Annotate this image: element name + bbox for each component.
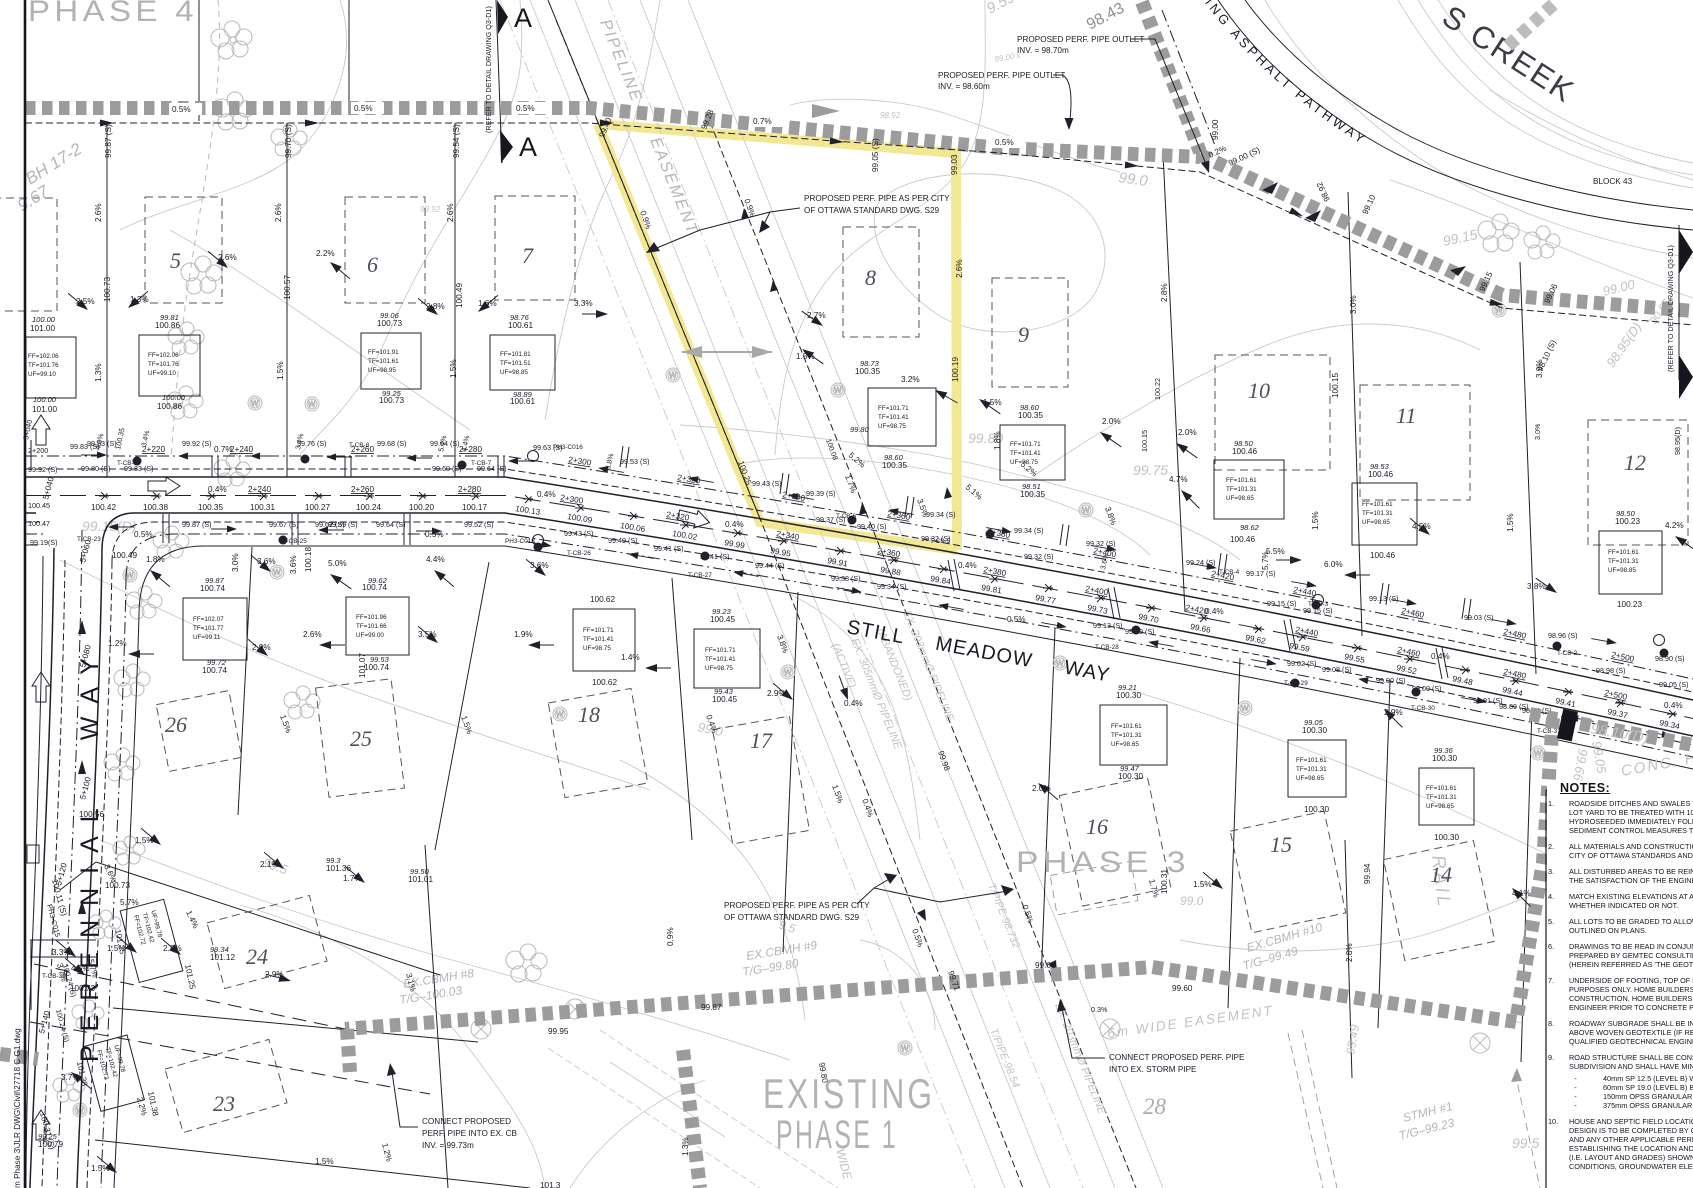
svg-text:2.1%: 2.1% (260, 860, 279, 869)
svg-text:5.7%: 5.7% (1261, 551, 1270, 570)
svg-text:1.5%: 1.5% (459, 715, 474, 736)
svg-text:1.5%: 1.5% (91, 1164, 110, 1173)
svg-text:98.92: 98.92 (880, 111, 901, 120)
svg-text:99.23: 99.23 (712, 607, 732, 616)
svg-text:25: 25 (350, 726, 372, 751)
svg-text:0.4%: 0.4% (725, 520, 744, 529)
svg-text:0.4%: 0.4% (958, 561, 977, 570)
svg-text:2.6%: 2.6% (446, 203, 455, 222)
svg-text:8: 8 (865, 265, 876, 290)
svg-text:101.00: 101.00 (30, 324, 55, 333)
svg-text:W: W (126, 571, 134, 580)
svg-text:99.34 (S): 99.34 (S) (1014, 526, 1044, 535)
svg-text:99.75: 99.75 (1133, 462, 1168, 478)
svg-text:S CREEK: S CREEK (1436, 0, 1581, 110)
svg-text:W: W (1534, 749, 1542, 758)
svg-text:98.96 (S): 98.96 (S) (1548, 631, 1578, 640)
svg-text:1.5%: 1.5% (983, 398, 1002, 407)
svg-text:PH3-C016: PH3-C016 (553, 444, 583, 451)
svg-text:99.60 (S): 99.60 (S) (432, 464, 462, 473)
svg-text:100.62: 100.62 (592, 678, 617, 687)
svg-text:BH 17-2: BH 17-2 (22, 139, 85, 188)
svg-text:5.7%: 5.7% (120, 898, 139, 907)
svg-text:5.2%: 5.2% (847, 451, 867, 470)
svg-text:99.5: 99.5 (1512, 1135, 1539, 1151)
svg-text:100.46: 100.46 (1232, 447, 1257, 456)
svg-text:98.89: 98.89 (513, 390, 533, 399)
svg-text:2.7%: 2.7% (807, 311, 826, 320)
svg-text:2.0%: 2.0% (1102, 417, 1121, 426)
svg-text:100.35: 100.35 (1018, 411, 1043, 420)
svg-text:99.43 (S): 99.43 (S) (752, 479, 782, 488)
svg-text:2+240: 2+240 (230, 445, 253, 454)
svg-text:5+040: 5+040 (41, 476, 56, 501)
svg-text:FF=101.61: FF=101.61 (1426, 785, 1457, 792)
svg-text:UF=98.95: UF=98.95 (368, 367, 396, 374)
svg-text:TF=101.31: TF=101.31 (1296, 766, 1327, 773)
svg-text:99.40 (S): 99.40 (S) (857, 522, 887, 531)
svg-text:(REFER TO DETAIL DRAWING Q3-D1: (REFER TO DETAIL DRAWING Q3-D1) (484, 6, 493, 133)
svg-text:0.9%: 0.9% (666, 927, 675, 946)
svg-text:99.64 (S): 99.64 (S) (376, 520, 406, 529)
svg-text:100.35: 100.35 (1020, 490, 1045, 499)
svg-text:1.5%: 1.5% (1311, 511, 1320, 530)
svg-text:100.15: 100.15 (1331, 373, 1340, 398)
svg-text:T-CB-30: T-CB-30 (1411, 705, 1435, 712)
svg-text:100.35: 100.35 (855, 367, 880, 376)
svg-text:99.15: 99.15 (1441, 226, 1479, 249)
svg-text:FF=102.06: FF=102.06 (28, 353, 59, 360)
svg-text:99.60: 99.60 (1172, 984, 1193, 993)
svg-text:99.72: 99.72 (207, 658, 227, 667)
svg-text:3.8%: 3.8% (775, 634, 790, 655)
svg-text:2.8%: 2.8% (426, 302, 445, 311)
svg-text:2.9%: 2.9% (1384, 708, 1403, 717)
svg-text:28: 28 (1143, 1094, 1167, 1119)
svg-text:UF=98.75: UF=98.75 (878, 423, 906, 430)
svg-text:TF=101.76: TF=101.76 (28, 362, 59, 369)
svg-text:3.0%: 3.0% (1349, 295, 1358, 314)
svg-text:3.8%: 3.8% (1527, 582, 1546, 591)
svg-text:PH3-C018: PH3-C018 (505, 538, 535, 545)
svg-text:2.6%: 2.6% (94, 203, 103, 222)
svg-text:0.5%: 0.5% (910, 928, 925, 949)
svg-text:PERF. PIPE INTO EX. CB: PERF. PIPE INTO EX. CB (422, 1129, 517, 1138)
svg-text:1.7%: 1.7% (843, 474, 858, 495)
svg-text:W: W (273, 568, 281, 577)
svg-text:99.87 (S): 99.87 (S) (182, 520, 212, 529)
svg-text:3.5%: 3.5% (915, 498, 930, 519)
svg-text:98.60: 98.60 (1020, 403, 1040, 412)
svg-text:99.43: 99.43 (714, 687, 734, 696)
svg-text:W: W (308, 400, 316, 409)
svg-text:UF=99.00: UF=99.00 (356, 632, 384, 639)
svg-text:PERENNIAL WAY: PERENNIAL WAY (76, 644, 104, 1062)
svg-text:FF=102.07: FF=102.07 (193, 616, 224, 623)
svg-text:98.10 (S): 98.10 (S) (1536, 338, 1559, 373)
svg-text:m Phase 3\JLR DWG\Civil\27718: m Phase 3\JLR DWG\Civil\27718 C G1.dwg (13, 1028, 22, 1188)
svg-text:99.0: 99.0 (1180, 894, 1204, 908)
svg-text:99.15(D): 99.15(D) (82, 518, 136, 534)
svg-text:FF=102.06: FF=102.06 (148, 352, 179, 359)
svg-text:3.5%: 3.5% (418, 630, 437, 639)
svg-text:100.46: 100.46 (1230, 535, 1255, 544)
svg-text:100.15: 100.15 (1140, 430, 1149, 452)
svg-text:99.34 (S): 99.34 (S) (877, 582, 907, 591)
svg-text:0.4%: 0.4% (1205, 607, 1224, 616)
svg-text:100.19: 100.19 (951, 357, 960, 382)
svg-text:99.87: 99.87 (701, 1003, 722, 1012)
svg-text:99.3: 99.3 (326, 856, 341, 865)
svg-text:100.24 (S): 100.24 (S) (54, 1008, 71, 1043)
svg-text:99.53: 99.53 (370, 655, 390, 664)
svg-text:T-CB-27: T-CB-27 (688, 572, 712, 579)
svg-text:99.13 (S): 99.13 (S) (1369, 594, 1399, 603)
svg-text:101.01: 101.01 (408, 875, 433, 884)
svg-text:W: W (784, 668, 792, 677)
svg-text:PHASE 3: PHASE 3 (1016, 846, 1190, 879)
svg-text:FF=101.61: FF=101.61 (1608, 549, 1639, 556)
svg-text:2.5%: 2.5% (76, 297, 95, 306)
svg-text:99.59 (S): 99.59 (S) (328, 520, 358, 529)
svg-text:TF=101.66: TF=101.66 (356, 623, 387, 630)
svg-text:W: W (1241, 704, 1249, 713)
svg-text:1.5%: 1.5% (830, 784, 845, 805)
svg-text:100.74: 100.74 (364, 663, 389, 672)
svg-text:6m WIDE EASEMENT: 6m WIDE EASEMENT (1106, 1003, 1274, 1041)
svg-text:98.60: 98.60 (884, 453, 904, 462)
svg-text:24: 24 (246, 944, 268, 969)
svg-text:100.30: 100.30 (1302, 726, 1327, 735)
svg-text:99.49 (S): 99.49 (S) (608, 536, 638, 545)
svg-text:0.4%: 0.4% (1664, 701, 1683, 710)
svg-text:99.44 (S): 99.44 (S) (755, 561, 785, 570)
svg-text:100.00: 100.00 (33, 395, 57, 404)
svg-text:99.36: 99.36 (1434, 746, 1454, 755)
svg-text:100.79: 100.79 (38, 1140, 63, 1149)
svg-text:UF=98.85: UF=98.85 (1608, 567, 1636, 574)
svg-text:23: 23 (213, 1091, 235, 1116)
svg-text:W: W (1082, 506, 1090, 515)
svg-text:99.05: 99.05 (1304, 718, 1324, 727)
svg-text:2.2%: 2.2% (135, 1096, 149, 1116)
svg-text:100.38: 100.38 (143, 503, 168, 512)
svg-text:17: 17 (750, 728, 773, 753)
svg-text:0.7%: 0.7% (214, 445, 233, 454)
svg-text:0.4%: 0.4% (860, 798, 875, 819)
svg-text:99.10: 99.10 (1361, 193, 1378, 216)
svg-text:100.18: 100.18 (304, 547, 313, 572)
svg-text:T-CB-26: T-CB-26 (567, 550, 591, 557)
svg-text:99.39 (S): 99.39 (S) (806, 489, 836, 498)
svg-text:99.25: 99.25 (382, 389, 402, 398)
svg-text:100.35: 100.35 (198, 503, 223, 512)
svg-text:99.95: 99.95 (548, 1027, 569, 1036)
svg-text:3.6%: 3.6% (530, 561, 549, 570)
svg-text:99.15 (S): 99.15 (S) (1267, 599, 1297, 608)
svg-text:2.9%: 2.9% (252, 643, 271, 652)
svg-text:100.17: 100.17 (462, 503, 487, 512)
svg-text:99.08 (S): 99.08 (S) (1322, 665, 1352, 674)
svg-text:99.00: 99.00 (1211, 119, 1220, 140)
svg-text:OF OTTAWA STANDARD DWG. S29: OF OTTAWA STANDARD DWG. S29 (724, 913, 860, 922)
svg-text:4.1%: 4.1% (1512, 889, 1531, 898)
svg-text:1.4%: 1.4% (184, 909, 200, 930)
svg-text:99.05 (S): 99.05 (S) (1659, 680, 1689, 689)
svg-text:16: 16 (1086, 814, 1108, 839)
svg-text:14: 14 (1430, 862, 1452, 887)
svg-text:99.81: 99.81 (160, 313, 179, 322)
svg-text:99.87 (S): 99.87 (S) (104, 124, 113, 158)
svg-text:0.5%: 0.5% (1007, 615, 1026, 624)
svg-text:EXISTING: EXISTING (763, 1070, 935, 1117)
svg-text:FF=101.61: FF=101.61 (1296, 757, 1327, 764)
svg-text:T-CB-31: T-CB-31 (1537, 728, 1561, 735)
svg-text:2.6%: 2.6% (274, 203, 283, 222)
svg-text:99.68 (S): 99.68 (S) (377, 439, 407, 448)
svg-text:1.8%: 1.8% (146, 555, 165, 564)
svg-text:99.03: 99.03 (950, 154, 959, 175)
svg-text:TF=101.61: TF=101.61 (368, 358, 399, 365)
svg-text:T-CB-2: T-CB-2 (1557, 650, 1578, 657)
svg-text:98.50: 98.50 (1234, 439, 1254, 448)
svg-text:2.9%: 2.9% (265, 970, 284, 979)
svg-text:1.5%: 1.5% (107, 944, 126, 953)
svg-text:TF=101.51: TF=101.51 (500, 360, 531, 367)
svg-text:100.31: 100.31 (250, 503, 275, 512)
svg-text:100.57: 100.57 (283, 275, 292, 300)
svg-text:5+140: 5+140 (37, 1010, 52, 1035)
svg-text:99.05 (S): 99.05 (S) (871, 138, 880, 172)
svg-text:100.24: 100.24 (356, 503, 381, 512)
svg-text:TF=101.31: TF=101.31 (1608, 558, 1639, 565)
svg-text:PHASE 1: PHASE 1 (776, 1113, 898, 1157)
svg-text:UF=98.65: UF=98.65 (1426, 803, 1454, 810)
svg-text:TF=101.77: TF=101.77 (193, 625, 224, 632)
svg-text:3.3%: 3.3% (52, 948, 71, 957)
svg-text:PROPOSED PERF. PIPE OUTLET: PROPOSED PERF. PIPE OUTLET (938, 71, 1065, 80)
svg-text:2.9%: 2.9% (767, 689, 786, 698)
svg-text:EX. 203mmØ PIPELINE: EX. 203mmØ PIPELINE (900, 609, 956, 724)
svg-text:15: 15 (1270, 832, 1292, 857)
svg-text:98.62: 98.62 (1240, 523, 1260, 532)
svg-text:99.70 (S): 99.70 (S) (284, 124, 293, 158)
svg-text:2.2%: 2.2% (316, 249, 335, 258)
svg-text:TF=101.31: TF=101.31 (1426, 794, 1457, 801)
svg-text:99.94: 99.94 (1363, 863, 1372, 884)
svg-text:100.74: 100.74 (200, 584, 225, 593)
svg-text:101.36: 101.36 (326, 864, 351, 873)
svg-text:99.41 (S): 99.41 (S) (654, 544, 684, 553)
svg-text:99.32 (S): 99.32 (S) (1086, 539, 1116, 548)
svg-text:99.21: 99.21 (1118, 683, 1137, 692)
svg-text:98.73: 98.73 (860, 359, 880, 368)
svg-text:99.47: 99.47 (1120, 764, 1140, 773)
svg-text:4.2%: 4.2% (1665, 521, 1684, 530)
svg-text:FF=101.61: FF=101.61 (1362, 501, 1393, 508)
svg-text:(REFER TO DETAIL DRAWING Q3-D1: (REFER TO DETAIL DRAWING Q3-D1) (1666, 245, 1675, 372)
svg-text:PROPOSED PERF. PIPE AS PER CIT: PROPOSED PERF. PIPE AS PER CITY (724, 901, 870, 910)
svg-text:3.0%: 3.0% (1533, 423, 1542, 440)
svg-text:1.5%: 1.5% (1193, 880, 1212, 889)
svg-text:100.23: 100.23 (1617, 600, 1642, 609)
svg-text:FF=101.61: FF=101.61 (1226, 477, 1257, 484)
svg-text:W: W (669, 371, 677, 380)
svg-text:100.00: 100.00 (32, 315, 56, 324)
svg-text:100.45: 100.45 (712, 695, 737, 704)
svg-text:100.73: 100.73 (377, 319, 402, 328)
svg-text:ING ASPHALT PATHWAY: ING ASPHALT PATHWAY (1202, 0, 1370, 148)
svg-text:9.59: 9.59 (984, 0, 1018, 18)
svg-text:UF=99.11: UF=99.11 (193, 634, 221, 641)
svg-text:10: 10 (1248, 378, 1270, 403)
svg-text:INV. = 98.70m: INV. = 98.70m (1017, 46, 1069, 55)
svg-text:5.4%: 5.4% (436, 434, 448, 452)
svg-text:98.95(D): 98.95(D) (1673, 427, 1682, 455)
svg-text:OF OTTAWA STANDARD DWG. S29: OF OTTAWA STANDARD DWG. S29 (804, 206, 940, 215)
svg-text:UF=99.10: UF=99.10 (148, 370, 176, 377)
svg-text:3.8%: 3.8% (1103, 506, 1118, 527)
svg-text:0.4%: 0.4% (208, 485, 227, 494)
svg-text:1.4%: 1.4% (621, 653, 640, 662)
svg-text:TF=101.41: TF=101.41 (1010, 450, 1041, 457)
svg-text:18: 18 (578, 702, 600, 727)
svg-text:2+280: 2+280 (458, 485, 481, 494)
svg-text:1.3%: 1.3% (130, 295, 149, 304)
svg-text:UF=98.65: UF=98.65 (1111, 741, 1139, 748)
svg-text:FF=101.91: FF=101.91 (368, 349, 399, 356)
svg-text:UF=98.65: UF=98.65 (1362, 519, 1390, 526)
svg-text:101.12: 101.12 (210, 953, 235, 962)
svg-text:98.53: 98.53 (1370, 462, 1390, 471)
svg-text:99.52 (S): 99.52 (S) (464, 520, 494, 529)
svg-text:99.66: 99.66 (1570, 747, 1591, 782)
svg-text:100.00: 100.00 (162, 393, 186, 402)
svg-text:99.05: 99.05 (1589, 740, 1610, 775)
svg-text:5: 5 (170, 248, 181, 273)
svg-text:2+480: 2+480 (1503, 667, 1528, 681)
svg-text:99.00 (S): 99.00 (S) (1376, 676, 1406, 685)
svg-text:1.5%: 1.5% (796, 352, 815, 361)
svg-text:99.98: 99.98 (936, 750, 952, 773)
svg-text:0.4%: 0.4% (844, 699, 863, 708)
svg-text:1.5%: 1.5% (315, 1157, 334, 1166)
svg-text:UF=98.75: UF=98.75 (705, 665, 733, 672)
svg-text:98.92: 98.92 (1315, 180, 1332, 203)
svg-text:99.49: 99.49 (1343, 1023, 1362, 1055)
svg-text:0.2%: 0.2% (1207, 144, 1228, 160)
svg-text:TF=101.31: TF=101.31 (1111, 732, 1142, 739)
svg-text:UF=98.65: UF=98.65 (1296, 775, 1324, 782)
svg-text:7: 7 (522, 243, 534, 268)
svg-text:TF=101.31: TF=101.31 (1362, 510, 1393, 517)
svg-text:99.0: 99.0 (1117, 169, 1149, 190)
svg-text:4.5%: 4.5% (1412, 522, 1431, 531)
svg-text:EX. 203mmØ PIPELINE: EX. 203mmØ PIPELINE (1052, 1002, 1108, 1117)
svg-text:3.7%: 3.7% (61, 1073, 80, 1082)
svg-text:99.13 (S): 99.13 (S) (1093, 621, 1123, 630)
svg-text:FF=101.81: FF=101.81 (500, 351, 531, 358)
svg-text:98.98 (S): 98.98 (S) (1596, 666, 1626, 675)
svg-text:A: A (514, 3, 532, 33)
svg-text:5+120: 5+120 (54, 862, 69, 887)
svg-text:2.6%: 2.6% (955, 259, 964, 278)
svg-text:0.4%: 0.4% (1431, 652, 1450, 661)
svg-text:3.0%: 3.0% (231, 553, 240, 572)
svg-text:1.5%: 1.5% (449, 359, 458, 378)
svg-text:2+240: 2+240 (248, 485, 271, 494)
svg-text:UF=98.65: UF=98.65 (1226, 495, 1254, 502)
svg-text:3.8%: 3.8% (603, 452, 615, 470)
svg-text:TF=101.41: TF=101.41 (878, 414, 909, 421)
svg-text:1.3%: 1.3% (94, 363, 103, 382)
svg-text:11: 11 (1396, 403, 1416, 428)
svg-text:99.68: 99.68 (1035, 961, 1056, 970)
svg-text:3.3%: 3.3% (574, 299, 593, 308)
svg-text:0.5%: 0.5% (172, 105, 191, 114)
svg-text:1.5%: 1.5% (135, 836, 154, 845)
svg-text:5.0%: 5.0% (328, 559, 347, 568)
svg-text:W: W (901, 1044, 909, 1053)
svg-text:100.22: 100.22 (1153, 378, 1162, 400)
svg-text:100.74: 100.74 (202, 666, 227, 675)
svg-text:100.27: 100.27 (305, 503, 330, 512)
svg-text:INV. = 98.60m: INV. = 98.60m (938, 82, 990, 91)
svg-text:5.1%: 5.1% (964, 483, 984, 502)
svg-text:3.6%: 3.6% (257, 557, 276, 566)
svg-text:1.6%: 1.6% (478, 299, 497, 308)
svg-text:A: A (519, 132, 537, 162)
svg-text:INTO EX. STORM PIPE: INTO EX. STORM PIPE (1109, 1065, 1197, 1074)
svg-text:100.46: 100.46 (1370, 551, 1395, 560)
svg-text:0.5%: 0.5% (134, 530, 153, 539)
svg-text:100.86: 100.86 (157, 402, 182, 411)
svg-text:100.45: 100.45 (28, 501, 50, 510)
svg-text:99.06: 99.06 (1543, 282, 1560, 305)
svg-text:PHASE 4: PHASE 4 (28, 0, 198, 28)
svg-text:99.00 (S): 99.00 (S) (1227, 145, 1262, 168)
svg-text:99.87: 99.87 (205, 576, 225, 585)
svg-text:W: W (1495, 306, 1503, 315)
svg-text:4.7%: 4.7% (1169, 475, 1188, 484)
svg-text:99.92 (S): 99.92 (S) (182, 439, 212, 448)
svg-text:2+300: 2+300 (568, 455, 593, 468)
svg-text:100.49: 100.49 (455, 283, 464, 308)
svg-text:1.2%: 1.2% (380, 1142, 394, 1162)
svg-text:100.61: 100.61 (508, 321, 533, 330)
svg-text:FF=101.71: FF=101.71 (878, 405, 909, 412)
svg-text:0.4%: 0.4% (537, 490, 556, 499)
svg-text:T-CB-5: T-CB-5 (930, 538, 951, 545)
svg-text:101.3: 101.3 (540, 1181, 561, 1188)
svg-text:1.5%: 1.5% (278, 714, 293, 735)
svg-text:TF=101.41: TF=101.41 (583, 636, 614, 643)
svg-text:FF=101.61: FF=101.61 (1111, 723, 1142, 730)
svg-text:UF=98.75: UF=98.75 (583, 645, 611, 652)
svg-text:100.30: 100.30 (1432, 754, 1457, 763)
svg-text:T-CB-35: T-CB-35 (42, 973, 66, 980)
svg-text:0.5%: 0.5% (516, 104, 535, 113)
svg-text:100.30: 100.30 (1118, 772, 1143, 781)
svg-text:TF=101.31: TF=101.31 (1226, 486, 1257, 493)
svg-text:98.43: 98.43 (1084, 0, 1127, 34)
svg-text:CONC. H: CONC. H (1620, 750, 1693, 780)
svg-text:99.43 (S): 99.43 (S) (564, 529, 594, 538)
svg-text:2+360: 2+360 (877, 546, 902, 559)
svg-text:2.0%: 2.0% (1032, 784, 1051, 793)
svg-text:100.62: 100.62 (590, 595, 615, 604)
svg-text:1.8%: 1.8% (993, 431, 1002, 450)
